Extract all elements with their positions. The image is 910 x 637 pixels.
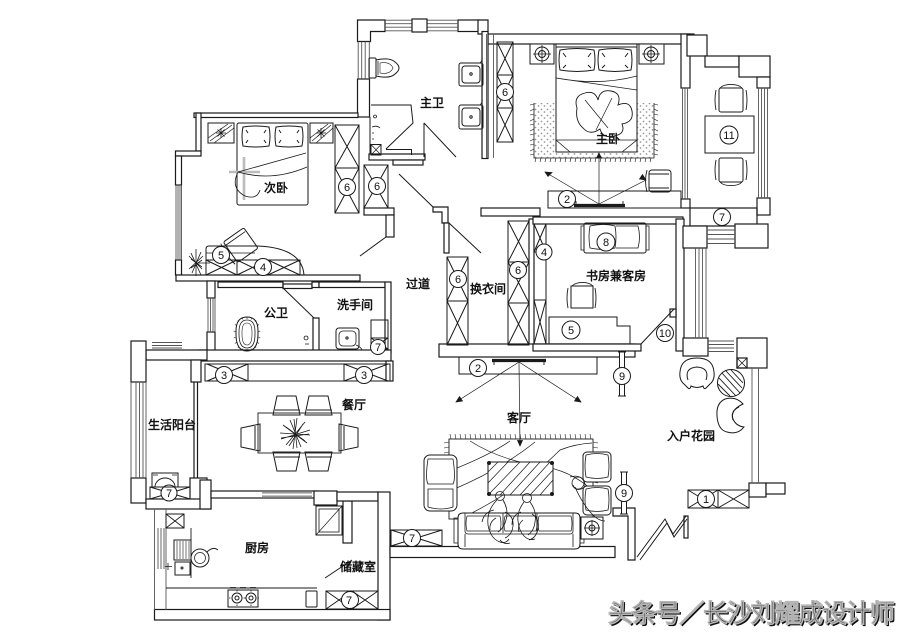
svg-text:公卫: 公卫 — [264, 306, 288, 320]
svg-text:1: 1 — [703, 494, 709, 506]
svg-text:9: 9 — [619, 371, 625, 383]
svg-text:5: 5 — [568, 325, 574, 337]
svg-text:6: 6 — [515, 265, 521, 277]
svg-text:2: 2 — [564, 194, 570, 206]
svg-text:餐厅: 餐厅 — [342, 397, 366, 412]
svg-text:7: 7 — [375, 342, 381, 354]
svg-text:2: 2 — [475, 363, 481, 375]
svg-text:洗手间: 洗手间 — [337, 297, 373, 312]
svg-text:6: 6 — [455, 274, 461, 286]
svg-text:11: 11 — [723, 130, 734, 142]
svg-text:7: 7 — [346, 595, 352, 607]
svg-text:3: 3 — [221, 370, 227, 382]
svg-text:厨房: 厨房 — [245, 540, 269, 555]
svg-text:6: 6 — [502, 87, 508, 99]
svg-text:7: 7 — [409, 533, 415, 545]
svg-text:9: 9 — [621, 488, 627, 500]
svg-text:6: 6 — [344, 182, 350, 194]
svg-text:7: 7 — [166, 488, 172, 500]
svg-text:入户花园: 入户花园 — [667, 428, 715, 443]
svg-text:4: 4 — [260, 262, 266, 274]
svg-text:客厅: 客厅 — [506, 410, 531, 425]
svg-text:主卫: 主卫 — [420, 95, 444, 110]
svg-text:4: 4 — [541, 247, 547, 259]
svg-text:7: 7 — [719, 212, 725, 224]
svg-text:生活阳台: 生活阳台 — [148, 417, 196, 432]
svg-text:过道: 过道 — [406, 276, 430, 291]
svg-text:换衣间: 换衣间 — [470, 281, 506, 296]
svg-text:8: 8 — [603, 237, 609, 249]
svg-text:头条号／长沙刘耀成设计师: 头条号／长沙刘耀成设计师 — [608, 600, 895, 628]
svg-text:储藏室: 储藏室 — [340, 559, 376, 574]
svg-text:5: 5 — [218, 250, 224, 262]
svg-text:10: 10 — [659, 328, 671, 340]
svg-text:3: 3 — [361, 370, 367, 382]
svg-text:主卧: 主卧 — [596, 131, 620, 146]
svg-text:6: 6 — [374, 181, 380, 193]
svg-text:次卧: 次卧 — [264, 180, 288, 195]
svg-text:书房兼客房: 书房兼客房 — [586, 268, 646, 283]
